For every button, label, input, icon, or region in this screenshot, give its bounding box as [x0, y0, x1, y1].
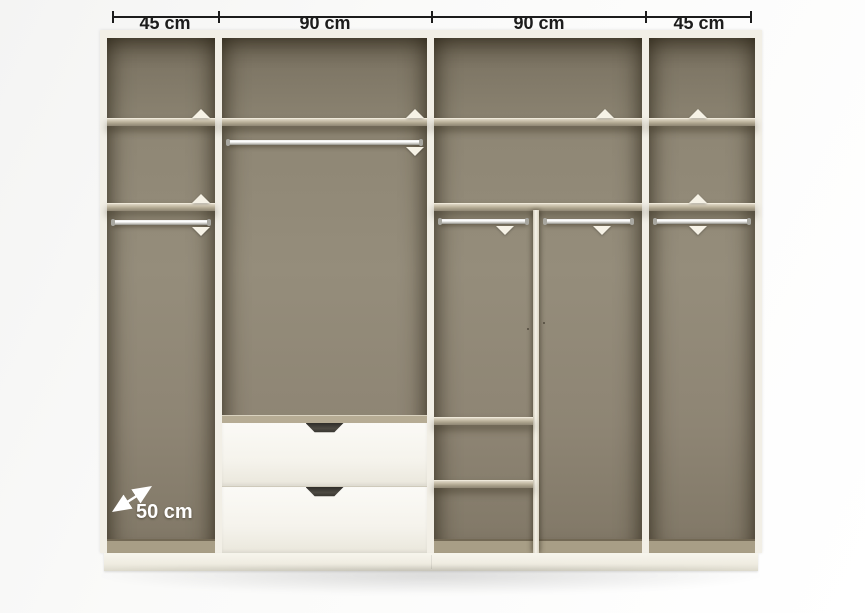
dimension-tick [645, 11, 647, 23]
compartment-floor [107, 539, 215, 553]
section-90-left [222, 38, 427, 553]
section-90-right [434, 38, 642, 553]
hanging-rail [439, 219, 528, 224]
drawer-lower [222, 487, 427, 553]
triangle-marker-icon [496, 226, 514, 235]
drawer-handle [306, 423, 344, 433]
triangle-marker-icon [596, 109, 614, 118]
hanging-rail [112, 220, 210, 225]
dimension-tick [431, 11, 433, 23]
dimension-tick [218, 11, 220, 23]
vertical-divider [533, 210, 539, 553]
shelf [649, 118, 755, 126]
cubby-shelf [434, 417, 533, 425]
section-45-right [649, 38, 755, 553]
shelf [434, 118, 642, 126]
ground-shadow [92, 567, 770, 595]
section-45-left [107, 38, 215, 553]
triangle-marker-icon [192, 194, 210, 203]
shelf [649, 203, 755, 211]
dimension-line: 45 cm 90 cm 90 cm 45 cm [112, 16, 752, 18]
triangle-marker-icon [406, 109, 424, 118]
shelf [222, 118, 427, 126]
wardrobe-frame [100, 30, 762, 553]
shelf [107, 118, 215, 126]
triangle-marker-icon [689, 109, 707, 118]
hanging-rail [227, 140, 422, 145]
dimension-tick [750, 11, 752, 23]
drawer-upper [222, 423, 427, 487]
triangle-marker-icon [593, 226, 611, 235]
hanging-rail [544, 219, 633, 224]
product-image: 45 cm 90 cm 90 cm 45 cm [0, 0, 865, 613]
cubby-shelf [434, 480, 533, 488]
triangle-marker-icon [192, 227, 210, 236]
wardrobe [100, 30, 762, 571]
hanging-rail [654, 219, 750, 224]
compartment-floor [649, 539, 755, 553]
depth-dimension-label: 50 cm [136, 501, 193, 524]
shelf [107, 203, 215, 211]
dimension-tick [112, 11, 114, 23]
triangle-marker-icon [192, 109, 210, 118]
drawer-handle [306, 487, 344, 497]
triangle-marker-icon [406, 147, 424, 156]
triangle-marker-icon [689, 194, 707, 203]
triangle-marker-icon [689, 226, 707, 235]
